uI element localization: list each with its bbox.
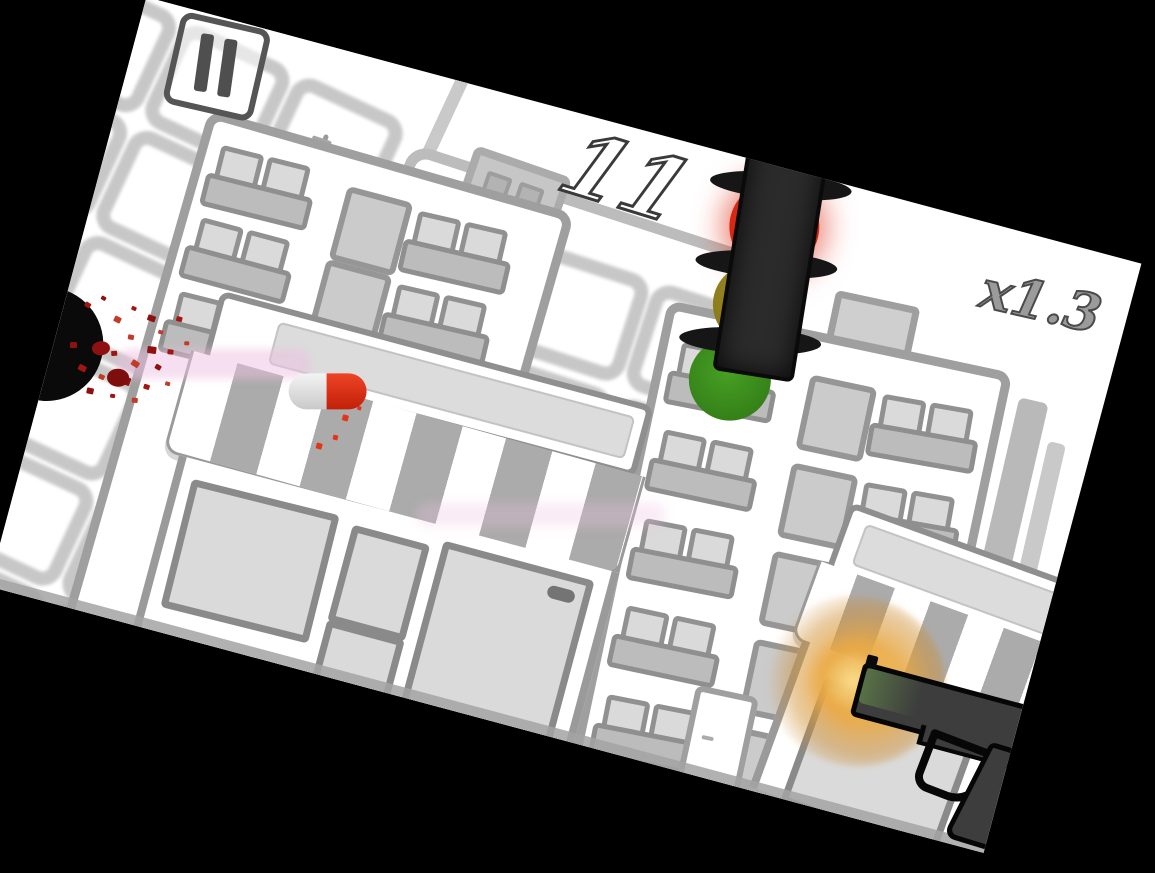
window-unit	[405, 211, 527, 298]
blood-particle	[111, 351, 117, 356]
bullet-trail-faint	[416, 503, 666, 527]
blood-particle	[167, 349, 173, 354]
multiplier-label: x1.3	[952, 259, 1129, 348]
door-handle	[546, 584, 576, 604]
blood-particle	[110, 394, 116, 399]
blood-particle	[147, 346, 157, 354]
window-unit	[651, 429, 772, 514]
game-canvas[interactable]: 11 x1.3	[0, 0, 1141, 853]
window-unit	[206, 145, 328, 234]
blood-particle	[86, 387, 94, 394]
window-unit	[614, 605, 735, 690]
blood-particle	[70, 342, 77, 348]
blood-particle	[128, 334, 135, 340]
blood-particle	[132, 397, 138, 402]
window-unit	[633, 518, 753, 602]
shop-window	[160, 479, 339, 644]
blood-particle	[107, 368, 130, 387]
window-unit	[872, 394, 991, 476]
bullet-trail	[116, 349, 311, 379]
game-stage: 11 x1.3	[0, 0, 1155, 873]
window-unit	[185, 217, 308, 307]
outline-window	[0, 281, 36, 434]
blood-particle	[184, 341, 189, 345]
capsule-projectile[interactable]	[289, 373, 367, 409]
